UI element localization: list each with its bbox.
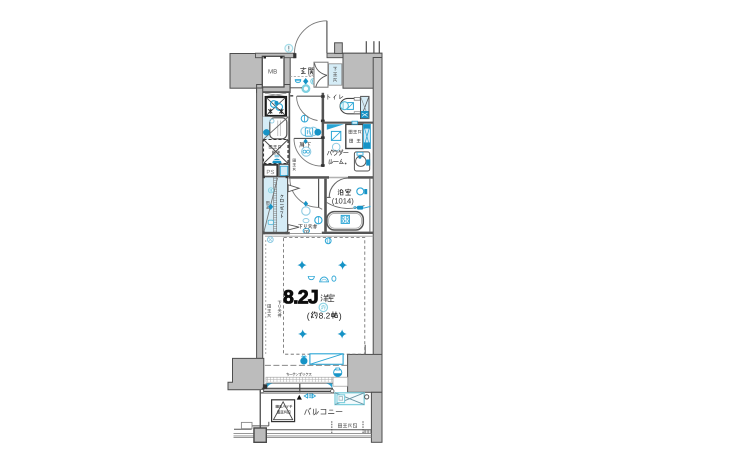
svg-text:): ) [339,311,342,321]
svg-text:8.2J: 8.2J [283,287,318,309]
svg-text:PS: PS [266,169,274,176]
svg-text:MB: MB [268,69,277,76]
svg-text:(1014): (1014) [332,197,354,206]
svg-text:(: ( [307,311,310,321]
svg-text:8.2: 8.2 [319,311,331,321]
